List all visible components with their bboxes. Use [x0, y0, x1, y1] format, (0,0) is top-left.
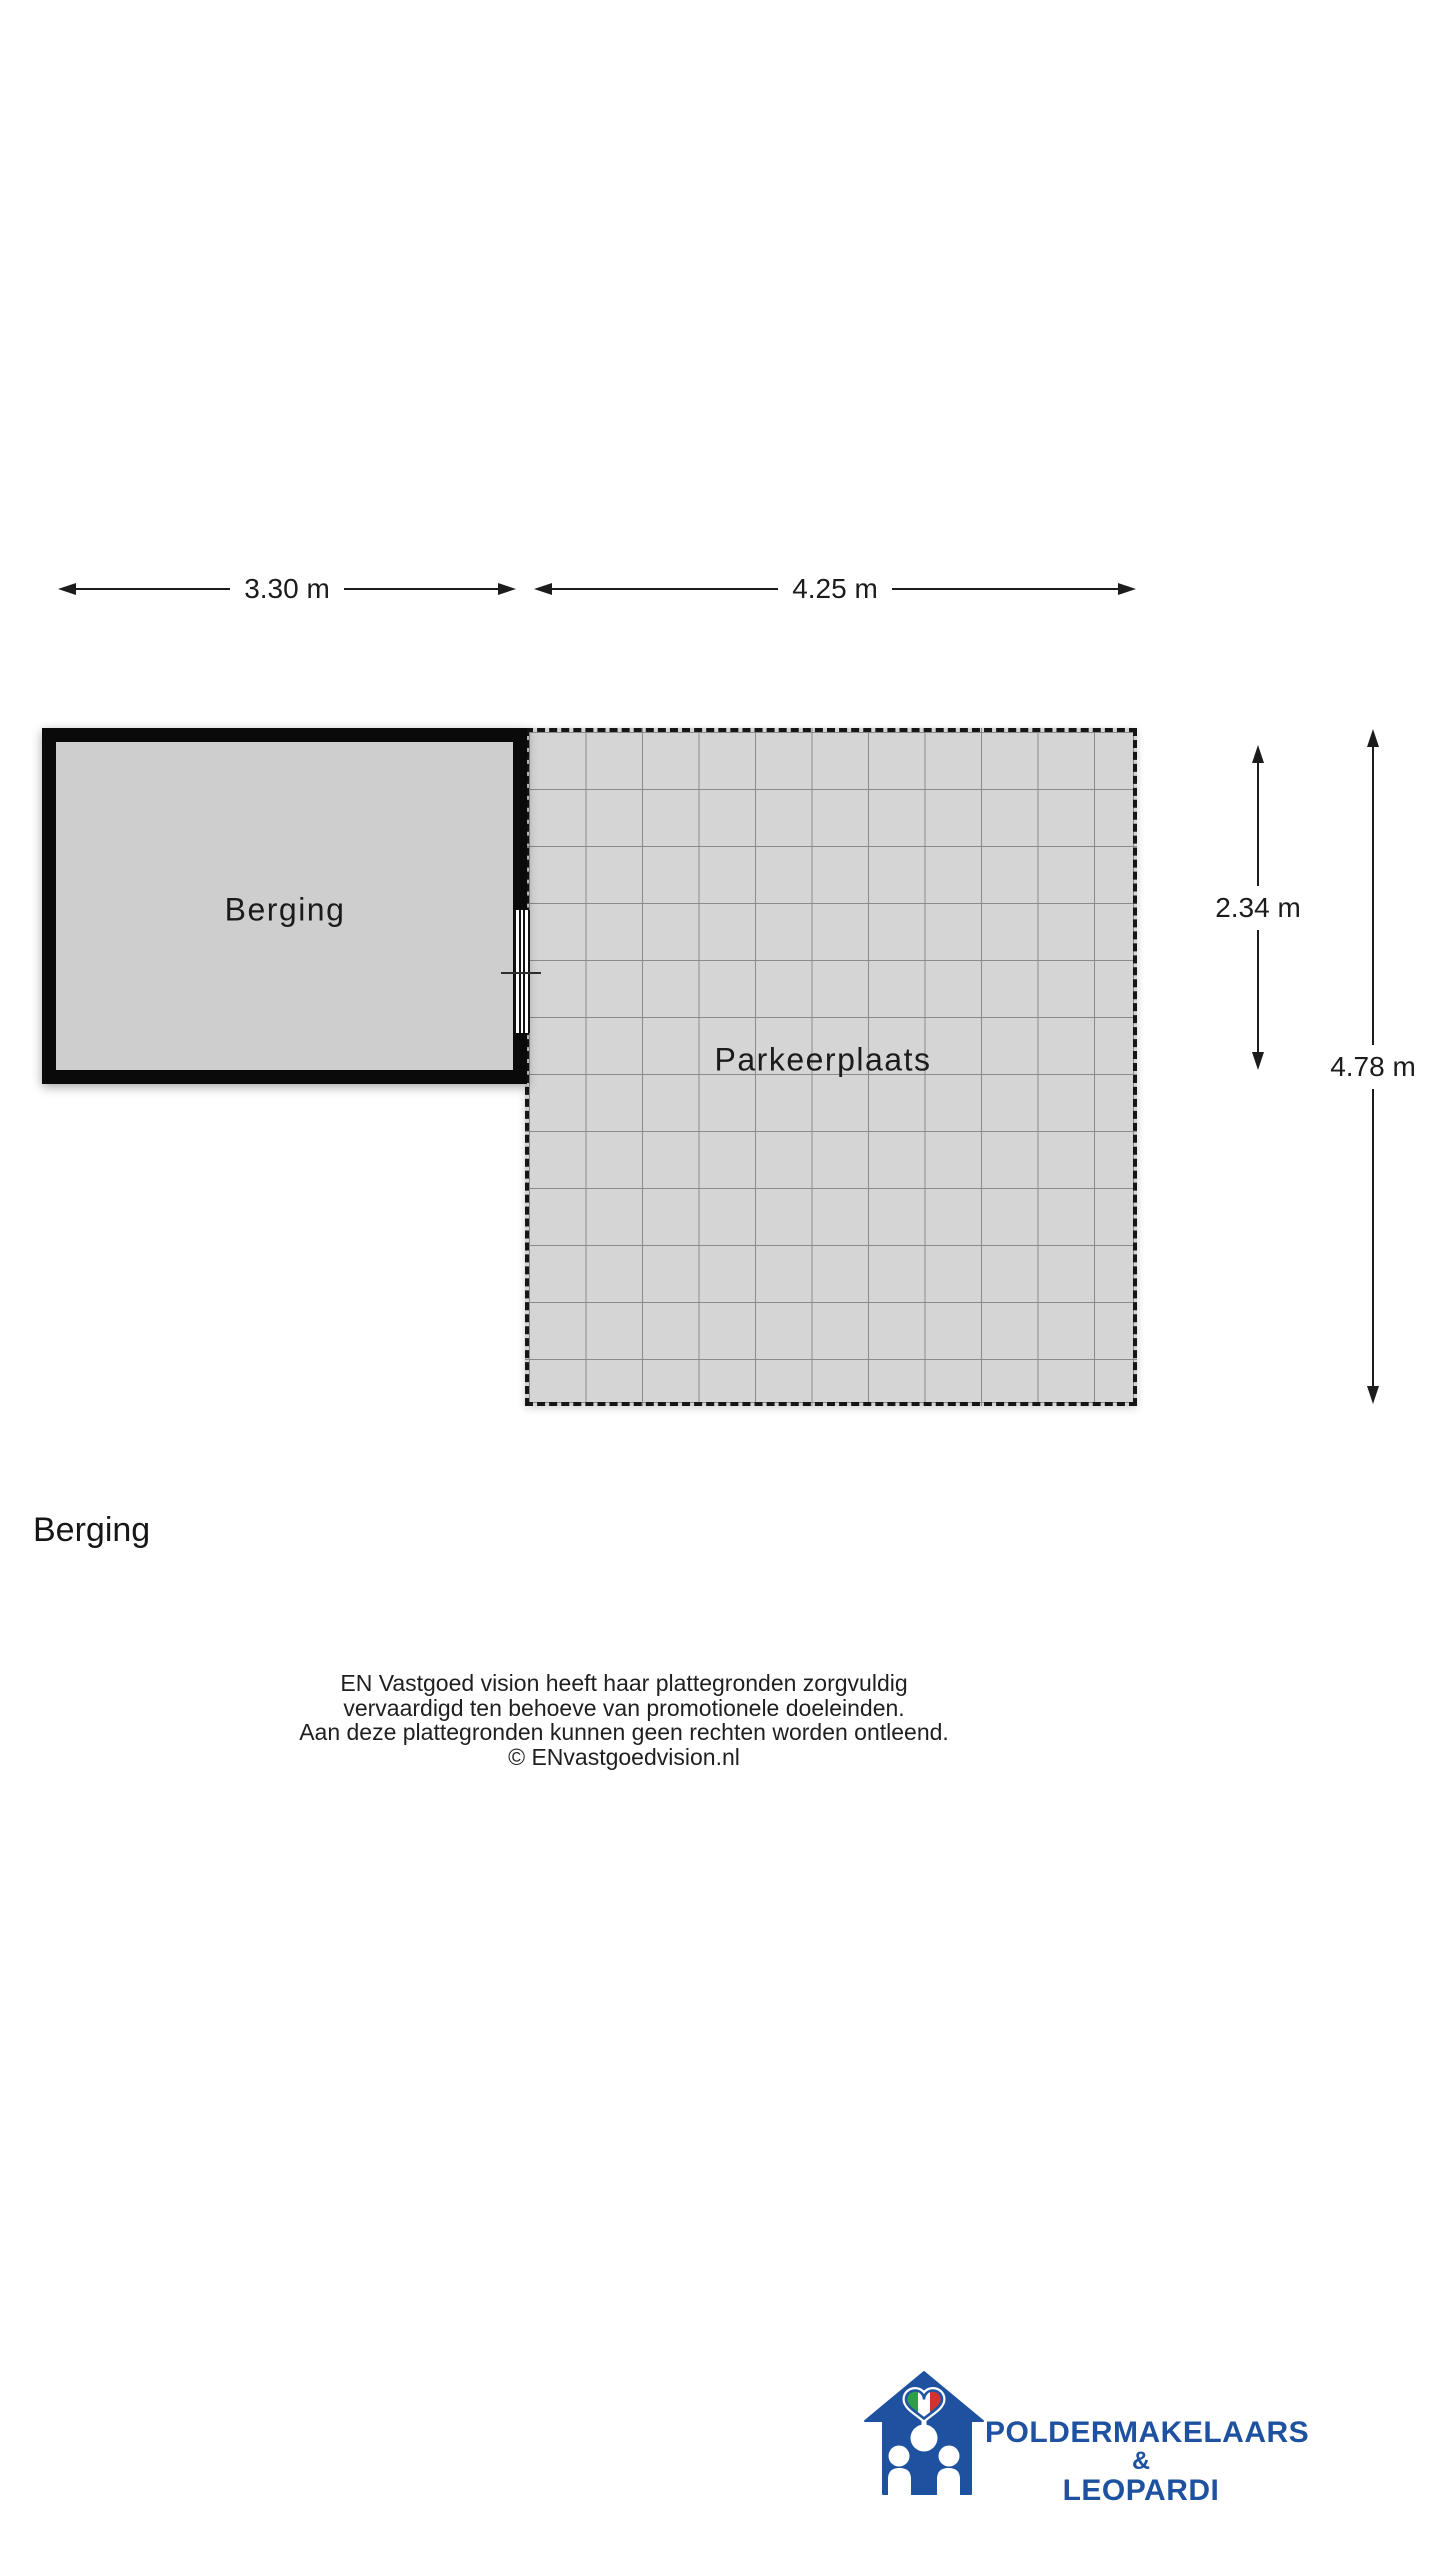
- dimension-parkeerplaats-height: 4.78 m: [1325, 729, 1421, 1404]
- agency-logo: POLDERMAKELAARS & LEOPARDI: [864, 2370, 1304, 2510]
- disclaimer-line: Aan deze plattegronden kunnen geen recht…: [124, 1720, 1124, 1745]
- dimension-line: [344, 588, 498, 590]
- arrowhead-up-icon: [1367, 729, 1379, 747]
- page-title: Berging: [33, 1509, 150, 1551]
- dimension-label: 2.34 m: [1215, 886, 1301, 930]
- disclaimer-line: © ENvastgoedvision.nl: [124, 1745, 1124, 1770]
- arrowhead-right-icon: [498, 583, 516, 595]
- dimension-parkeerplaats-width: 4.25 m: [534, 575, 1136, 603]
- arrowhead-down-icon: [1252, 1052, 1264, 1070]
- room-label-berging: Berging: [225, 892, 346, 929]
- arrowhead-down-icon: [1367, 1386, 1379, 1404]
- dimension-berging-width: 3.30 m: [58, 575, 516, 603]
- dimension-label: 4.78 m: [1330, 1045, 1416, 1089]
- floorplan-drawing: Berging Parkeerplaats: [42, 728, 1202, 1408]
- arrowhead-right-icon: [1118, 583, 1136, 595]
- disclaimer-text: EN Vastgoed vision heeft haar plattegron…: [124, 1671, 1124, 1769]
- disclaimer-line: EN Vastgoed vision heeft haar plattegron…: [124, 1671, 1124, 1696]
- arrowhead-up-icon: [1252, 745, 1264, 763]
- logo-ampersand: &: [985, 2448, 1297, 2475]
- dimension-line: [1257, 763, 1259, 886]
- window-tick-mark: [501, 972, 541, 974]
- dimension-line: [552, 588, 778, 590]
- arrowhead-left-icon: [534, 583, 552, 595]
- floorplan-page: 3.30 m 4.25 m Berging Parkeerplaats 2.34…: [0, 0, 1440, 2560]
- disclaimer-line: vervaardigd ten behoeve van promotionele…: [124, 1696, 1124, 1721]
- logo-name-bottom: LEOPARDI: [985, 2475, 1297, 2506]
- dimension-line: [1257, 930, 1259, 1053]
- room-label-parkeerplaats: Parkeerplaats: [715, 1042, 932, 1079]
- dimension-line: [76, 588, 230, 590]
- dimension-label: 4.25 m: [778, 573, 892, 605]
- dimension-line: [1372, 1089, 1374, 1387]
- dimension-line: [1372, 747, 1374, 1045]
- house-heart-people-icon: [864, 2370, 986, 2496]
- logo-name-top: POLDERMAKELAARS: [985, 2417, 1297, 2448]
- logo-wordmark: POLDERMAKELAARS & LEOPARDI: [985, 2417, 1297, 2506]
- dimension-line: [892, 588, 1118, 590]
- arrowhead-left-icon: [58, 583, 76, 595]
- dimension-label: 3.30 m: [230, 573, 344, 605]
- dimension-berging-height: 2.34 m: [1210, 745, 1306, 1070]
